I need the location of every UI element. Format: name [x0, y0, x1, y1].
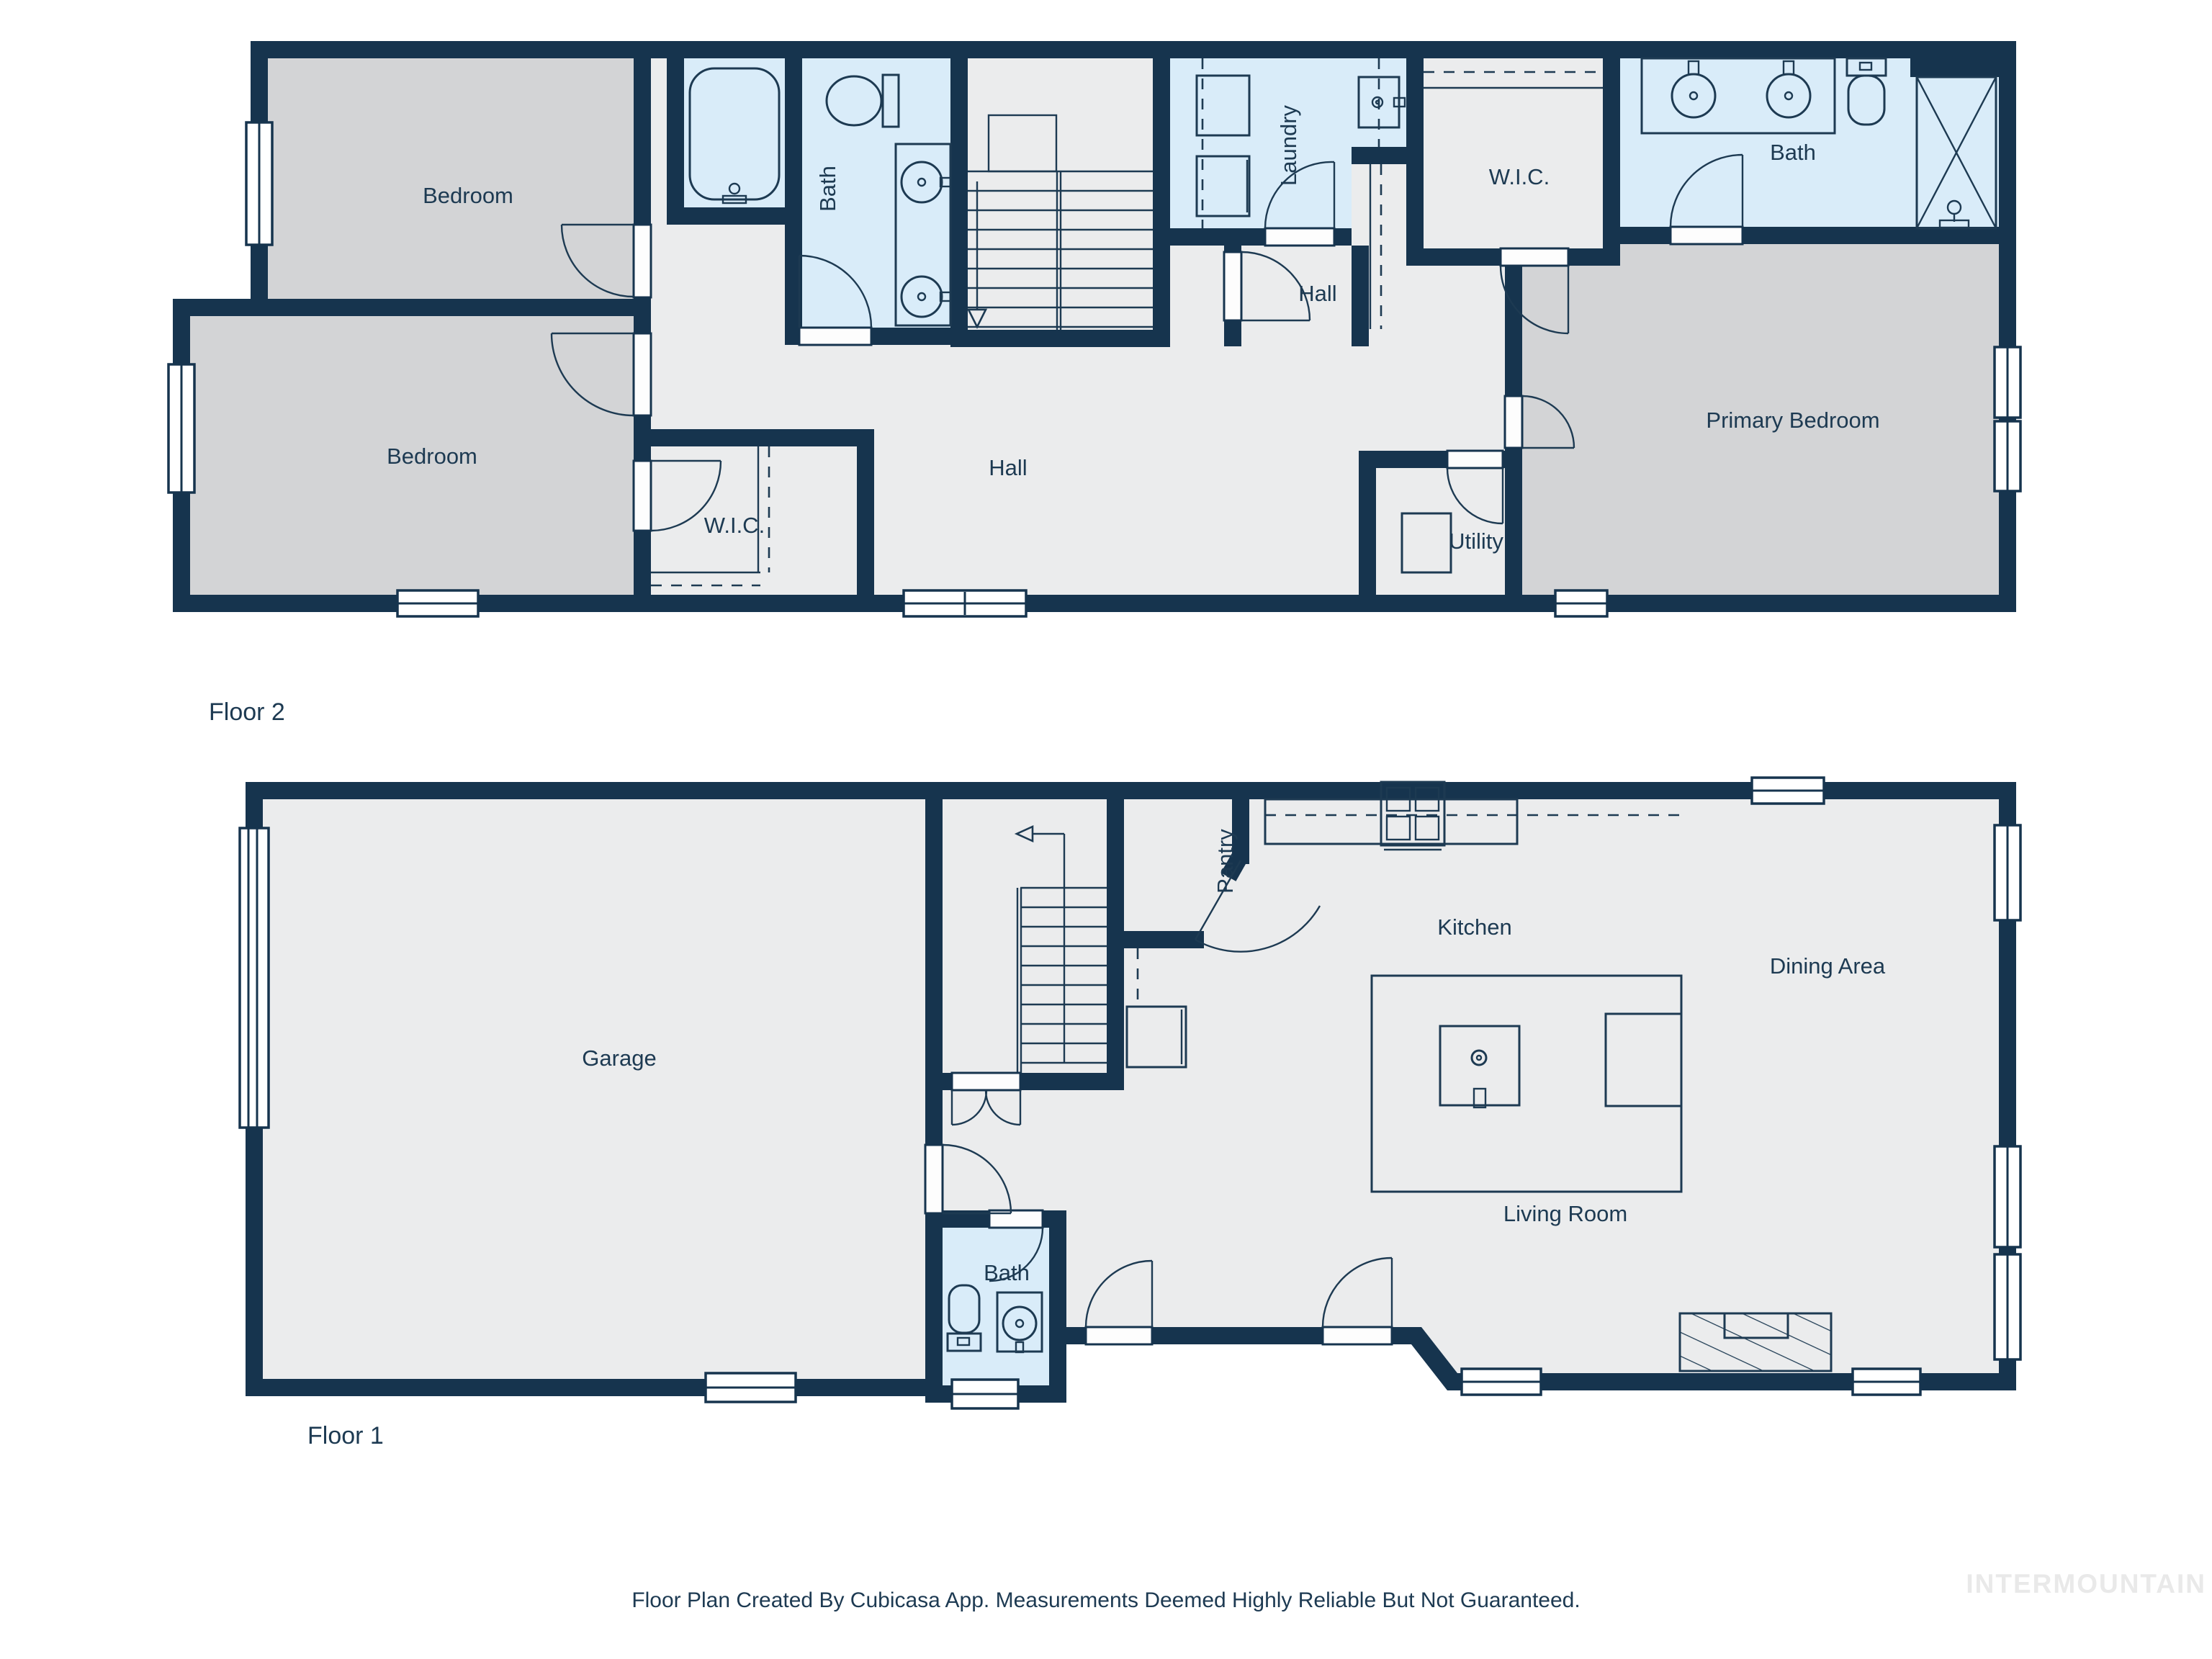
- room-label-dining-area: Dining Area: [1770, 953, 1886, 979]
- room-label-pantry: Pantry: [1213, 829, 1238, 894]
- wall: [268, 299, 651, 316]
- room-label-bedroom-2: Bedroom: [387, 444, 477, 469]
- room-label-bath-left: Bath: [815, 166, 840, 212]
- floor1-caption: Floor 1: [307, 1422, 384, 1449]
- door-opening: [1323, 1327, 1392, 1344]
- wall: [925, 799, 943, 1403]
- floor-plan-canvas: Bedroom Bedroom Bath Hall W.I.C. Laundry…: [0, 0, 2212, 1659]
- door-opening: [634, 333, 651, 415]
- room-label-utility: Utility: [1449, 529, 1503, 554]
- garage-door-icon: [240, 828, 269, 1128]
- window: [952, 1380, 1018, 1408]
- window: [1555, 590, 1607, 616]
- wall: [1107, 931, 1204, 948]
- wall: [1359, 451, 1376, 595]
- room-label-kitchen: Kitchen: [1437, 914, 1511, 940]
- window: [1995, 1254, 2020, 1359]
- wall: [950, 330, 1170, 347]
- wall: [1406, 58, 1424, 266]
- window: [1995, 1146, 2020, 1247]
- room-label-wic-left: W.I.C.: [704, 513, 765, 538]
- watermark: INTERMOUNTAIN: [1966, 1569, 2206, 1599]
- window: [904, 590, 1026, 616]
- door-opening: [1265, 228, 1334, 246]
- window: [397, 590, 478, 616]
- floor1-floor: [263, 799, 1999, 1385]
- wall: [1153, 58, 1170, 347]
- door-opening: [1086, 1327, 1152, 1344]
- wall: [1910, 41, 2016, 77]
- window: [246, 122, 272, 245]
- door-opening: [1501, 248, 1568, 266]
- window: [1995, 421, 2020, 491]
- room-label-bath-floor1: Bath: [984, 1260, 1030, 1285]
- room-label-hall-small: Hall: [1298, 281, 1336, 306]
- floor2-plan: Bedroom Bedroom Bath Hall W.I.C. Laundry…: [168, 41, 2020, 616]
- window: [1995, 825, 2020, 920]
- wall: [667, 58, 684, 225]
- wall: [1049, 1210, 1066, 1403]
- room-tub-alcove: [684, 58, 785, 207]
- window: [1752, 778, 1824, 804]
- room-bath-floor1: [943, 1228, 1049, 1385]
- window: [1995, 347, 2020, 418]
- room-bedroom-1: [268, 58, 634, 299]
- wall: [1352, 246, 1369, 346]
- wall: [950, 58, 968, 347]
- window: [168, 364, 194, 493]
- door-opening: [634, 461, 651, 531]
- fireplace-icon: [1680, 1313, 1831, 1371]
- door-opening: [925, 1145, 943, 1213]
- wall: [651, 429, 874, 446]
- door-opening: [952, 1073, 1020, 1090]
- door-opening: [634, 225, 651, 297]
- floor1-plan: Garage Pantry Kitchen Dining Area Living…: [240, 778, 2020, 1408]
- footer-disclaimer: Floor Plan Created By Cubicasa App. Meas…: [631, 1588, 1580, 1612]
- door-opening: [1447, 451, 1503, 468]
- door-opening: [1224, 252, 1241, 320]
- door-opening: [1671, 227, 1743, 244]
- wall: [1603, 58, 1620, 266]
- room-label-primary-bedroom: Primary Bedroom: [1706, 408, 1879, 433]
- door-opening: [799, 328, 871, 345]
- floor2-caption: Floor 2: [209, 698, 285, 726]
- room-label-garage: Garage: [582, 1046, 656, 1071]
- room-label-bath-right: Bath: [1770, 140, 1816, 165]
- wall: [667, 207, 802, 225]
- room-label-wic-right: W.I.C.: [1489, 164, 1550, 189]
- room-label-living-room: Living Room: [1503, 1201, 1627, 1226]
- room-label-bedroom-1: Bedroom: [423, 183, 513, 208]
- room-label-hall: Hall: [989, 455, 1027, 480]
- room-label-laundry: Laundry: [1276, 104, 1301, 186]
- window: [1462, 1369, 1541, 1395]
- window: [1853, 1369, 1920, 1395]
- floor-plan-page: Bedroom Bedroom Bath Hall W.I.C. Laundry…: [0, 0, 2212, 1659]
- wall: [857, 429, 874, 612]
- door-opening: [1505, 396, 1522, 448]
- window: [706, 1373, 796, 1402]
